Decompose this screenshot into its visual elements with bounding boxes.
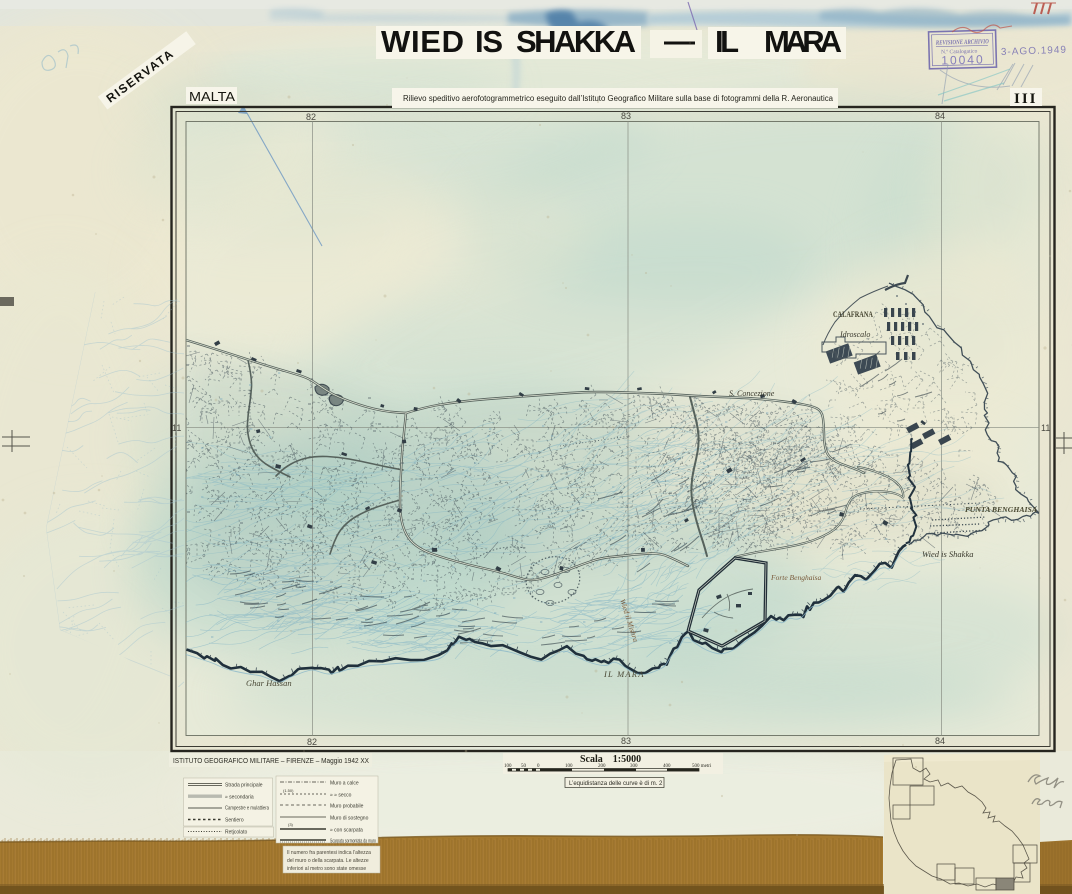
svg-text:Rilievo speditivo aerofotogram: Rilievo speditivo aerofotogrammetrico es… (403, 94, 834, 103)
svg-text:CALAFRANA: CALAFRANA (833, 309, 874, 319)
svg-text:84: 84 (935, 736, 945, 746)
svg-text:Il numero fra parentesi indica: Il numero fra parentesi indica l’altezza (287, 850, 371, 856)
svg-text:83: 83 (621, 736, 631, 746)
svg-text:del muro o della scarpata. Le: del muro o della scarpata. Le altezze (287, 858, 369, 864)
svg-text:MALTA: MALTA (189, 89, 235, 104)
svg-text:inferiori al metro sono state: inferiori al metro sono state omesse (287, 866, 366, 872)
svg-text:Strada principale: Strada principale (225, 783, 263, 789)
svg-text:83: 83 (621, 111, 631, 121)
svg-text:MARA: MARA (764, 24, 842, 59)
svg-text:3-AGO.1949: 3-AGO.1949 (1001, 45, 1067, 58)
svg-text:PUNTA BENGHAISA: PUNTA BENGHAISA (965, 505, 1037, 514)
svg-text:III: III (1014, 91, 1038, 107)
svg-text:Scarpata sormontata da muro: Scarpata sormontata da muro (330, 839, 376, 845)
svg-text:11: 11 (172, 423, 181, 433)
svg-text:SHAKKA: SHAKKA (516, 24, 636, 59)
svg-text:S. Concezione: S. Concezione (729, 389, 775, 398)
svg-text:84: 84 (935, 111, 945, 121)
svg-text:Sentiero: Sentiero (225, 818, 244, 824)
svg-text:Retjcolato: Retjcolato (225, 830, 247, 836)
svg-text:» con scarpata: » con scarpata (330, 828, 363, 834)
svg-text:Ghar Hassan: Ghar Hassan (246, 678, 292, 688)
svg-text:—: — (664, 23, 695, 58)
svg-text:Forte Benghaisa: Forte Benghaisa (770, 573, 821, 582)
svg-text:L’equidistanza delle curve è d: L’equidistanza delle curve è di m. 2 (569, 781, 663, 787)
svg-text:WIED: WIED (381, 24, 464, 59)
svg-text:(3): (3) (288, 822, 294, 827)
svg-text:Muro probabile: Muro probabile (330, 804, 364, 810)
svg-text:Idroscalo: Idroscalo (839, 330, 870, 339)
svg-text:11: 11 (1041, 423, 1050, 433)
svg-text:82: 82 (307, 737, 317, 747)
svg-text:IL MARA: IL MARA (603, 669, 645, 679)
svg-text:ISTITUTO GEOGRAFICO MILITARE –: ISTITUTO GEOGRAFICO MILITARE – FIRENZE –… (173, 756, 369, 765)
svg-text:82: 82 (306, 112, 316, 122)
svg-text:IL: IL (715, 24, 739, 59)
svg-text:Wied is Shakka: Wied is Shakka (922, 549, 973, 559)
svg-text:» secondaria: » secondaria (225, 795, 254, 801)
svg-text:IS: IS (475, 24, 503, 59)
svg-text:» » secco: » » secco (330, 793, 352, 799)
svg-text:Muro di sostegno: Muro di sostegno (330, 816, 369, 822)
svg-text:Muro a calce: Muro a calce (330, 781, 359, 787)
svg-text:Campestre e mulattiera: Campestre e mulattiera (225, 806, 269, 812)
svg-text:(1.50): (1.50) (283, 788, 294, 793)
